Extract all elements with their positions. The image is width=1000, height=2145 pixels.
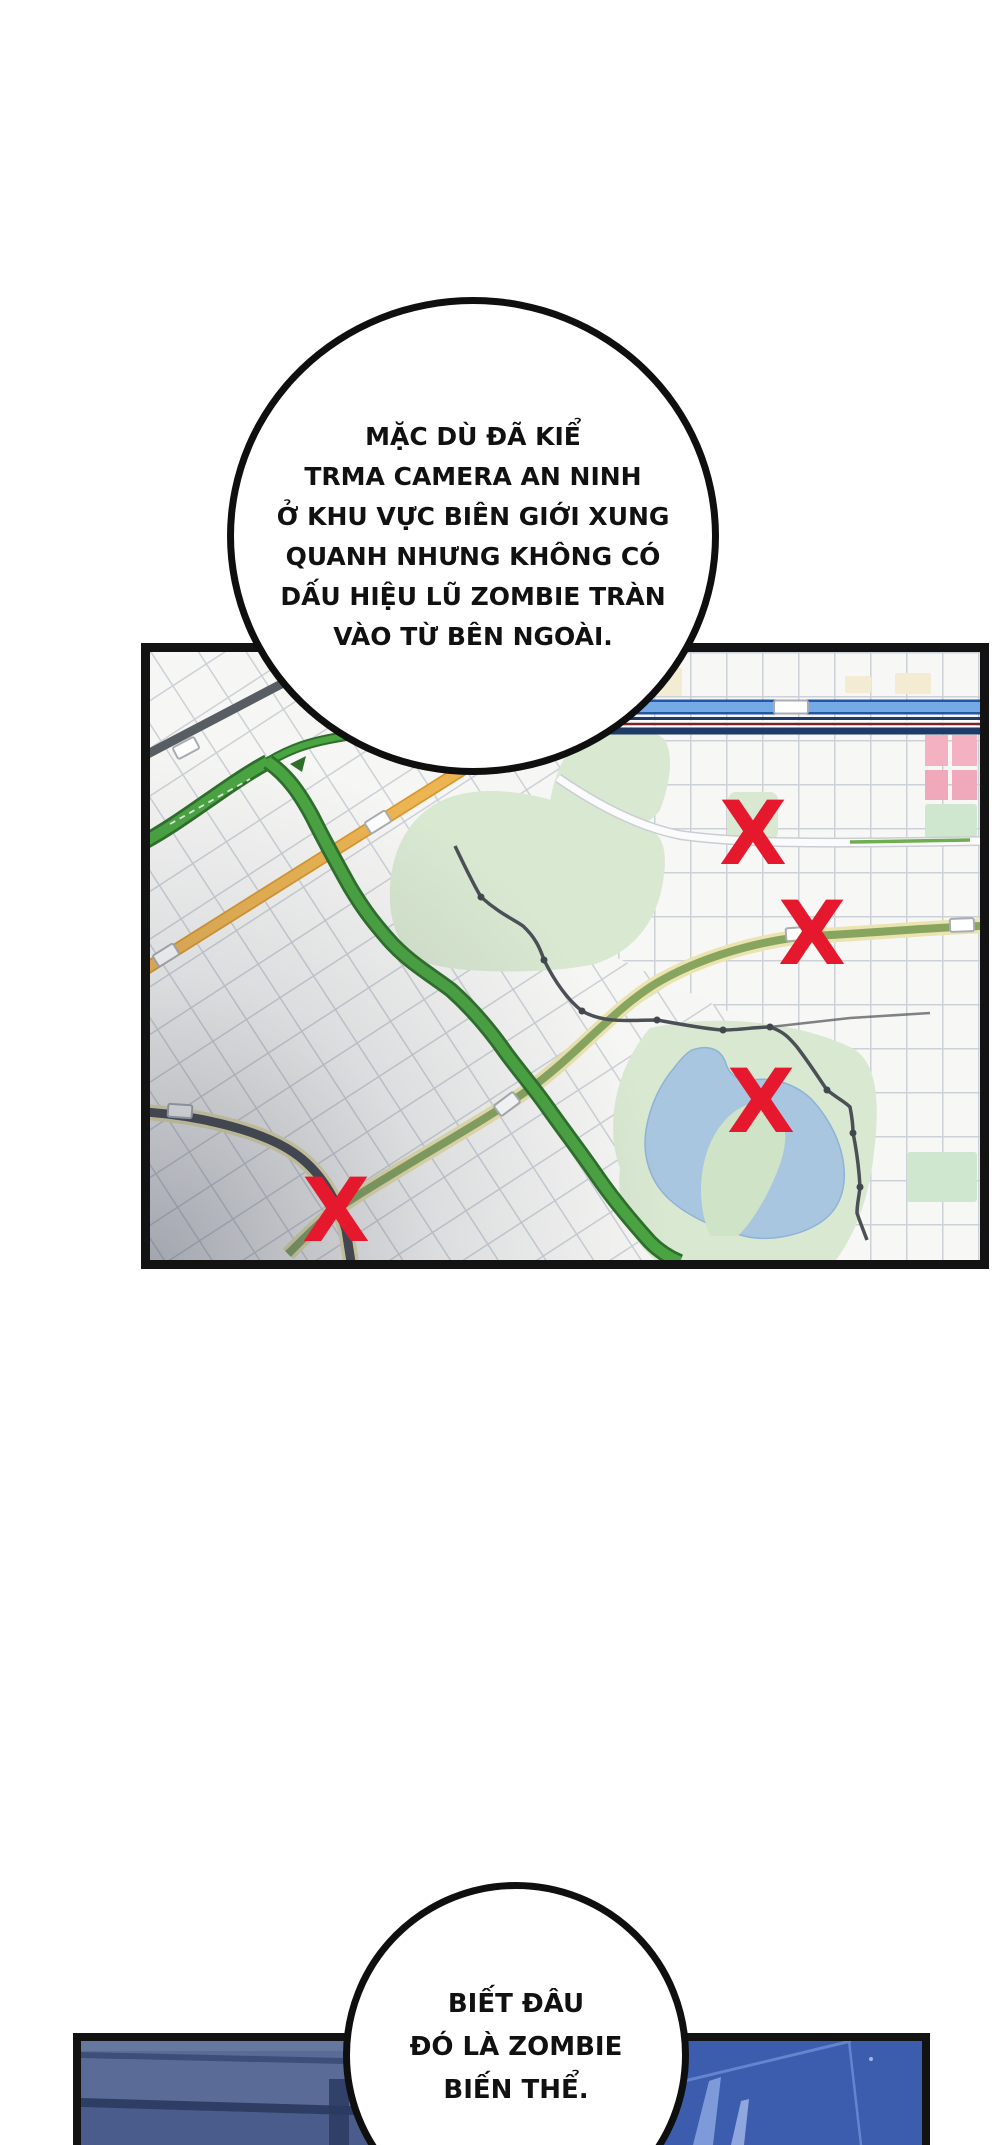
x-mark-3: X [727,1050,795,1153]
bubble-line: VÀO TỪ BÊN NGOÀI. [234,617,712,657]
bubble-line: BIẾN THỂ. [350,2069,682,2112]
x-mark-1: X [719,782,787,885]
bubble-line: TRMA CAMERA AN NINH [234,457,712,497]
x-mark-4: X [302,1159,370,1260]
top-speech-bubble: MẶC DÙ ĐÃ KIỂ TRMA CAMERA AN NINH Ở KHU … [227,297,719,775]
bubble-line: BIẾT ĐÂU [350,1983,682,2026]
bubble-line: QUANH NHƯNG KHÔNG CÓ [234,537,712,577]
bubble-line: ĐÓ LÀ ZOMBIE [350,2026,682,2069]
bubble-line: MẶC DÙ ĐÃ KIỂ [234,417,712,457]
bottom-speech-bubble: BIẾT ĐÂU ĐÓ LÀ ZOMBIE BIẾN THỂ. [343,1882,689,2145]
x-mark-2: X [778,882,846,985]
comic-page: X X X X MẶC [0,0,1000,2145]
bubble-line: Ở KHU VỰC BIÊN GIỚI XUNG [234,497,712,537]
bubble-line: DẤU HIỆU LŨ ZOMBIE TRÀN [234,577,712,617]
